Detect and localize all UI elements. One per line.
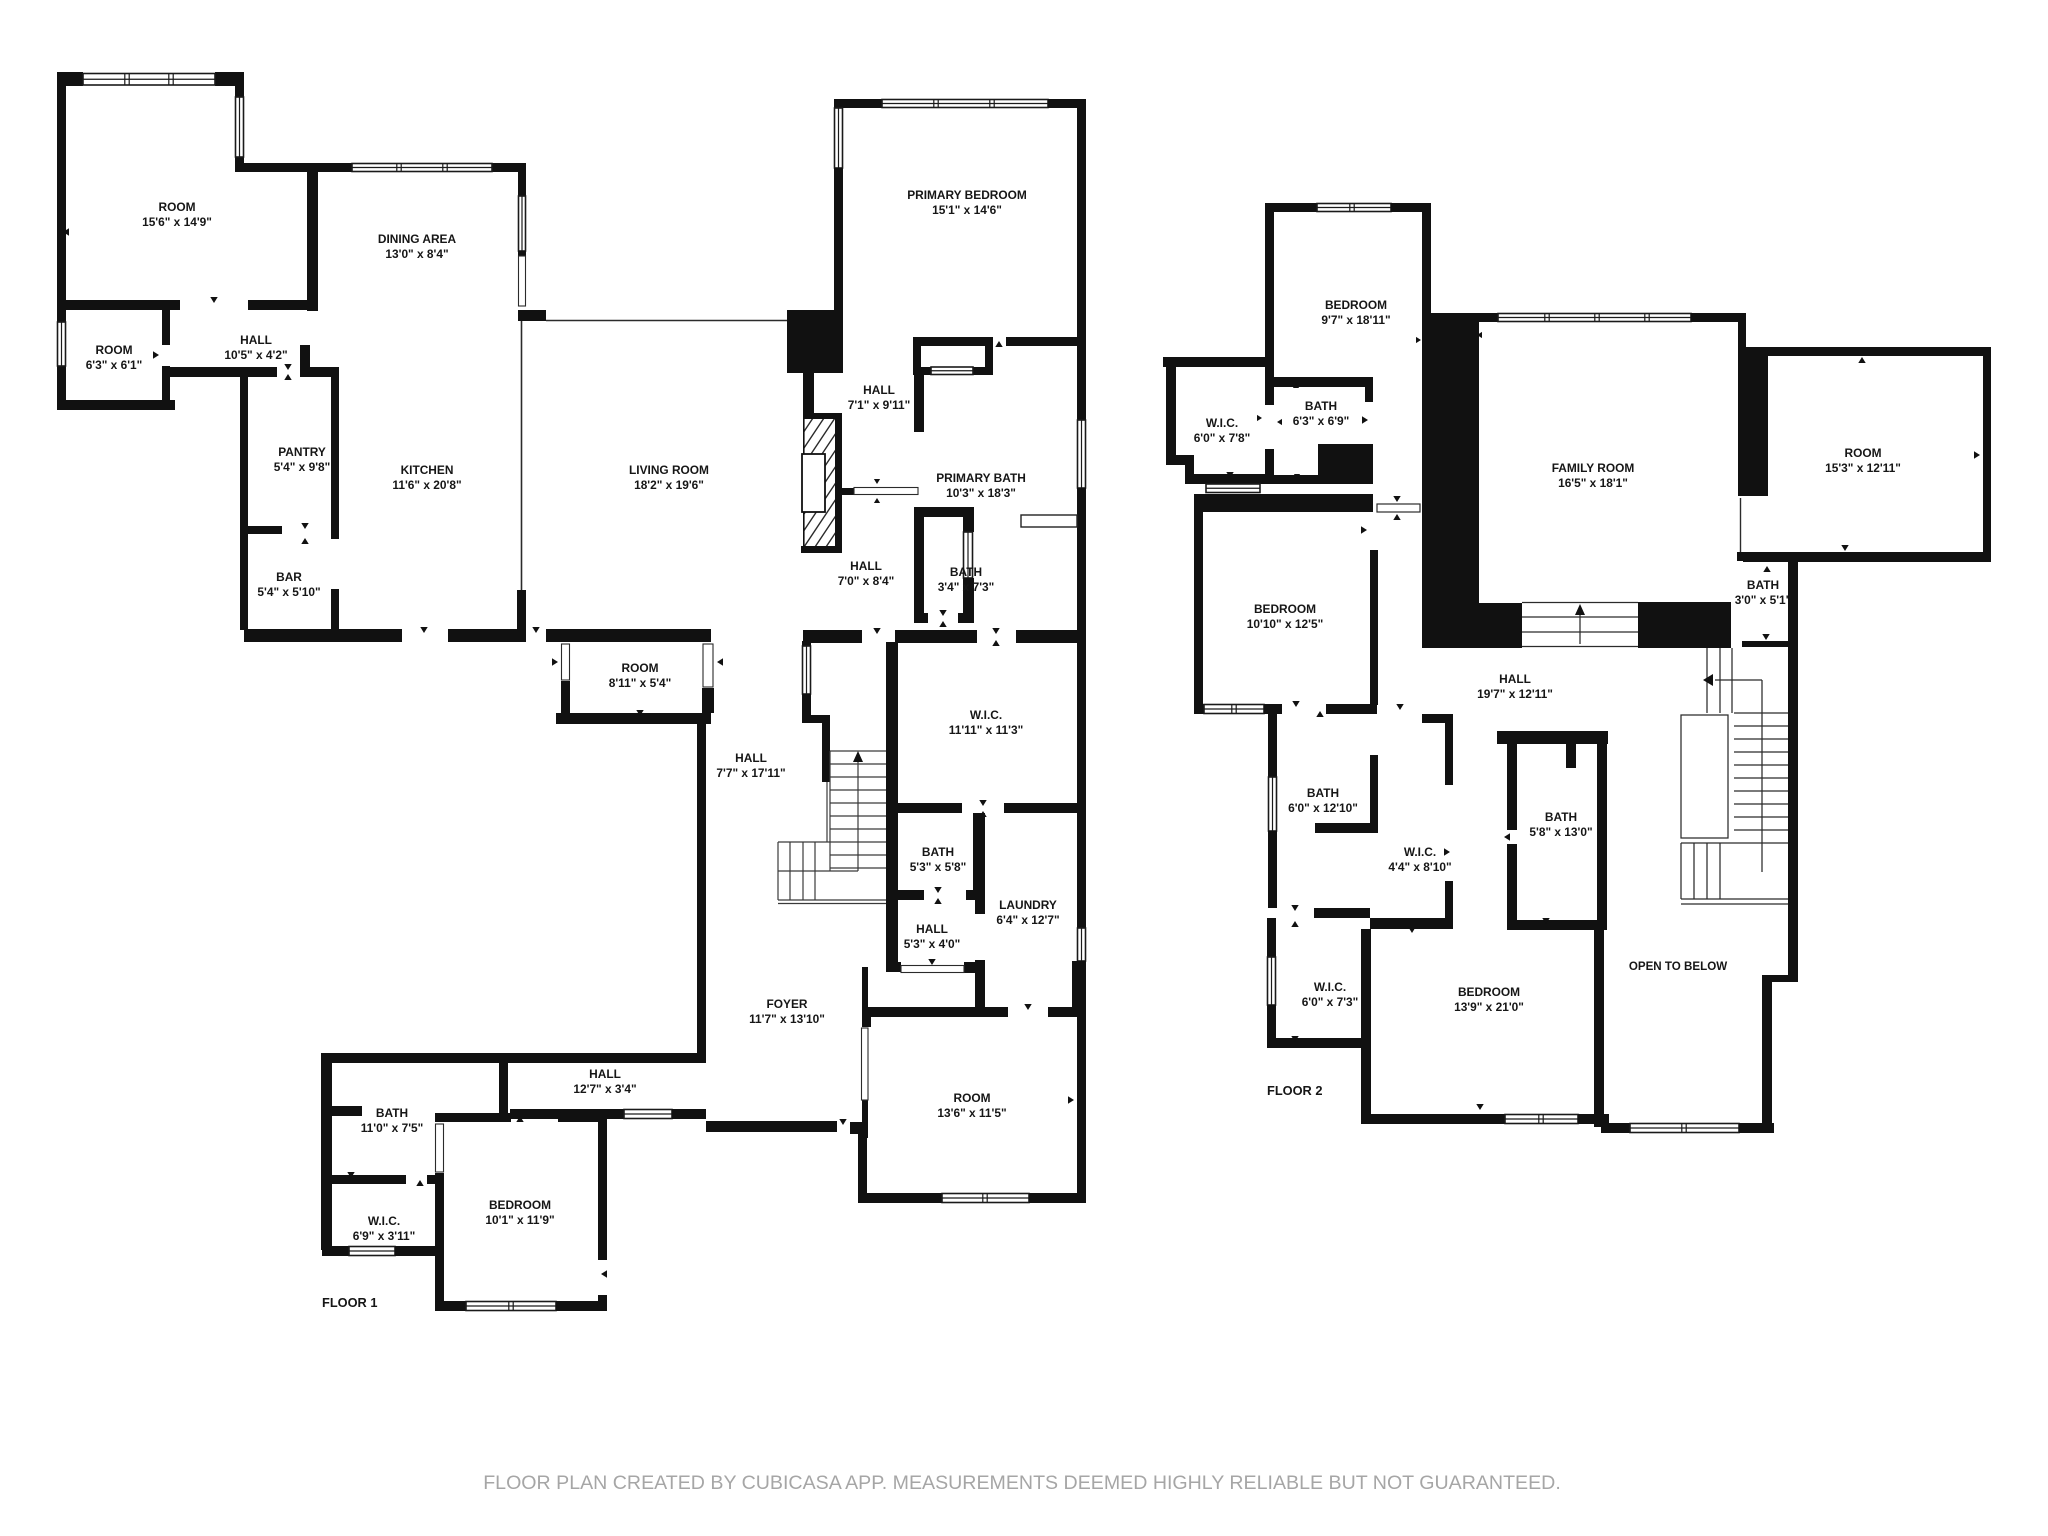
svg-text:HALL: HALL [240,333,272,347]
svg-text:LAUNDRY: LAUNDRY [999,898,1057,912]
svg-text:7'1" x 9'11": 7'1" x 9'11" [848,398,911,412]
svg-text:15'3" x 12'11": 15'3" x 12'11" [1825,461,1901,475]
svg-text:FLOOR 2: FLOOR 2 [1267,1083,1322,1098]
svg-text:11'7" x 13'10": 11'7" x 13'10" [749,1012,825,1026]
svg-text:W.I.C.: W.I.C. [368,1214,400,1228]
svg-text:10'1" x 11'9": 10'1" x 11'9" [485,1213,554,1227]
svg-text:10'10" x 12'5": 10'10" x 12'5" [1247,617,1323,631]
svg-text:13'0" x 8'4": 13'0" x 8'4" [385,247,448,261]
svg-text:BEDROOM: BEDROOM [1254,602,1316,616]
svg-text:BATH: BATH [1545,810,1577,824]
svg-text:W.I.C.: W.I.C. [1206,416,1238,430]
svg-text:6'0" x 7'8": 6'0" x 7'8" [1194,431,1251,445]
svg-text:16'5" x 18'1": 16'5" x 18'1" [1558,476,1628,490]
svg-text:BATH: BATH [950,565,982,579]
svg-text:HALL: HALL [735,751,767,765]
svg-text:10'5" x 4'2": 10'5" x 4'2" [224,348,287,362]
svg-text:PRIMARY BATH: PRIMARY BATH [936,471,1026,485]
svg-text:4'4" x 8'10": 4'4" x 8'10" [1388,860,1451,874]
svg-text:BATH: BATH [1307,786,1339,800]
svg-text:12'7" x 3'4": 12'7" x 3'4" [573,1082,636,1096]
svg-text:KITCHEN: KITCHEN [401,463,454,477]
svg-text:DINING AREA: DINING AREA [378,232,457,246]
svg-text:FLOOR 1: FLOOR 1 [322,1295,377,1310]
svg-text:HALL: HALL [589,1067,621,1081]
svg-text:11'11" x 11'3": 11'11" x 11'3" [949,723,1023,737]
svg-text:W.I.C.: W.I.C. [1404,845,1436,859]
svg-text:ROOM: ROOM [159,200,196,214]
svg-text:HALL: HALL [916,922,948,936]
svg-text:6'3" x 6'1": 6'3" x 6'1" [86,358,143,372]
svg-text:PANTRY: PANTRY [278,445,326,459]
svg-text:BATH: BATH [922,845,954,859]
svg-text:ROOM: ROOM [96,343,133,357]
svg-text:W.I.C.: W.I.C. [970,708,1002,722]
svg-text:6'0" x 12'10": 6'0" x 12'10" [1288,801,1358,815]
svg-text:PRIMARY BEDROOM: PRIMARY BEDROOM [907,188,1027,202]
svg-text:7'0" x 8'4": 7'0" x 8'4" [838,574,895,588]
svg-text:FAMILY ROOM: FAMILY ROOM [1552,461,1635,475]
svg-text:HALL: HALL [850,559,882,573]
svg-text:BEDROOM: BEDROOM [1458,985,1520,999]
svg-text:3'0" x 5'1": 3'0" x 5'1" [1735,593,1792,607]
svg-text:BAR: BAR [276,570,302,584]
svg-text:18'2" x 19'6": 18'2" x 19'6" [634,478,704,492]
svg-text:6'4" x 12'7": 6'4" x 12'7" [996,913,1059,927]
svg-text:ROOM: ROOM [1845,446,1882,460]
svg-text:5'4" x 5'10": 5'4" x 5'10" [257,585,320,599]
svg-text:HALL: HALL [1499,672,1531,686]
svg-text:3'4" x 7'3": 3'4" x 7'3" [938,580,995,594]
svg-text:10'3" x 18'3": 10'3" x 18'3" [946,486,1016,500]
svg-text:OPEN TO BELOW: OPEN TO BELOW [1629,960,1727,973]
svg-text:BATH: BATH [1747,578,1779,592]
svg-text:6'0" x 7'3": 6'0" x 7'3" [1302,995,1359,1009]
svg-text:BEDROOM: BEDROOM [489,1198,551,1212]
svg-text:BATH: BATH [376,1106,408,1120]
svg-text:HALL: HALL [863,383,895,397]
svg-text:5'3" x 5'8": 5'3" x 5'8" [910,860,967,874]
svg-text:11'0" x 7'5": 11'0" x 7'5" [361,1121,424,1135]
svg-text:15'6" x 14'9": 15'6" x 14'9" [142,215,212,229]
svg-text:FLOOR PLAN CREATED BY CUBICASA: FLOOR PLAN CREATED BY CUBICASA APP. MEAS… [483,1472,1561,1494]
svg-text:13'9" x 21'0": 13'9" x 21'0" [1454,1000,1524,1014]
svg-text:5'4" x 9'8": 5'4" x 9'8" [274,460,331,474]
svg-text:W.I.C.: W.I.C. [1314,980,1346,994]
svg-text:9'7" x 18'11": 9'7" x 18'11" [1321,313,1390,327]
svg-text:6'3" x 6'9": 6'3" x 6'9" [1293,414,1350,428]
svg-text:7'7" x 17'11": 7'7" x 17'11" [716,766,785,780]
svg-text:ROOM: ROOM [954,1091,991,1105]
svg-text:LIVING ROOM: LIVING ROOM [629,463,709,477]
svg-text:13'6" x 11'5": 13'6" x 11'5" [937,1106,1006,1120]
svg-text:11'6" x 20'8": 11'6" x 20'8" [392,478,461,492]
svg-text:BATH: BATH [1305,399,1337,413]
svg-text:15'1" x 14'6": 15'1" x 14'6" [932,203,1002,217]
svg-text:BEDROOM: BEDROOM [1325,298,1387,312]
svg-text:8'11" x 5'4": 8'11" x 5'4" [609,676,672,690]
svg-text:5'3" x 4'0": 5'3" x 4'0" [904,937,961,951]
svg-text:ROOM: ROOM [622,661,659,675]
svg-text:FOYER: FOYER [767,997,808,1011]
svg-text:19'7" x 12'11": 19'7" x 12'11" [1477,687,1553,701]
svg-text:5'8" x 13'0": 5'8" x 13'0" [1529,825,1592,839]
svg-text:6'9" x 3'11": 6'9" x 3'11" [353,1229,416,1243]
